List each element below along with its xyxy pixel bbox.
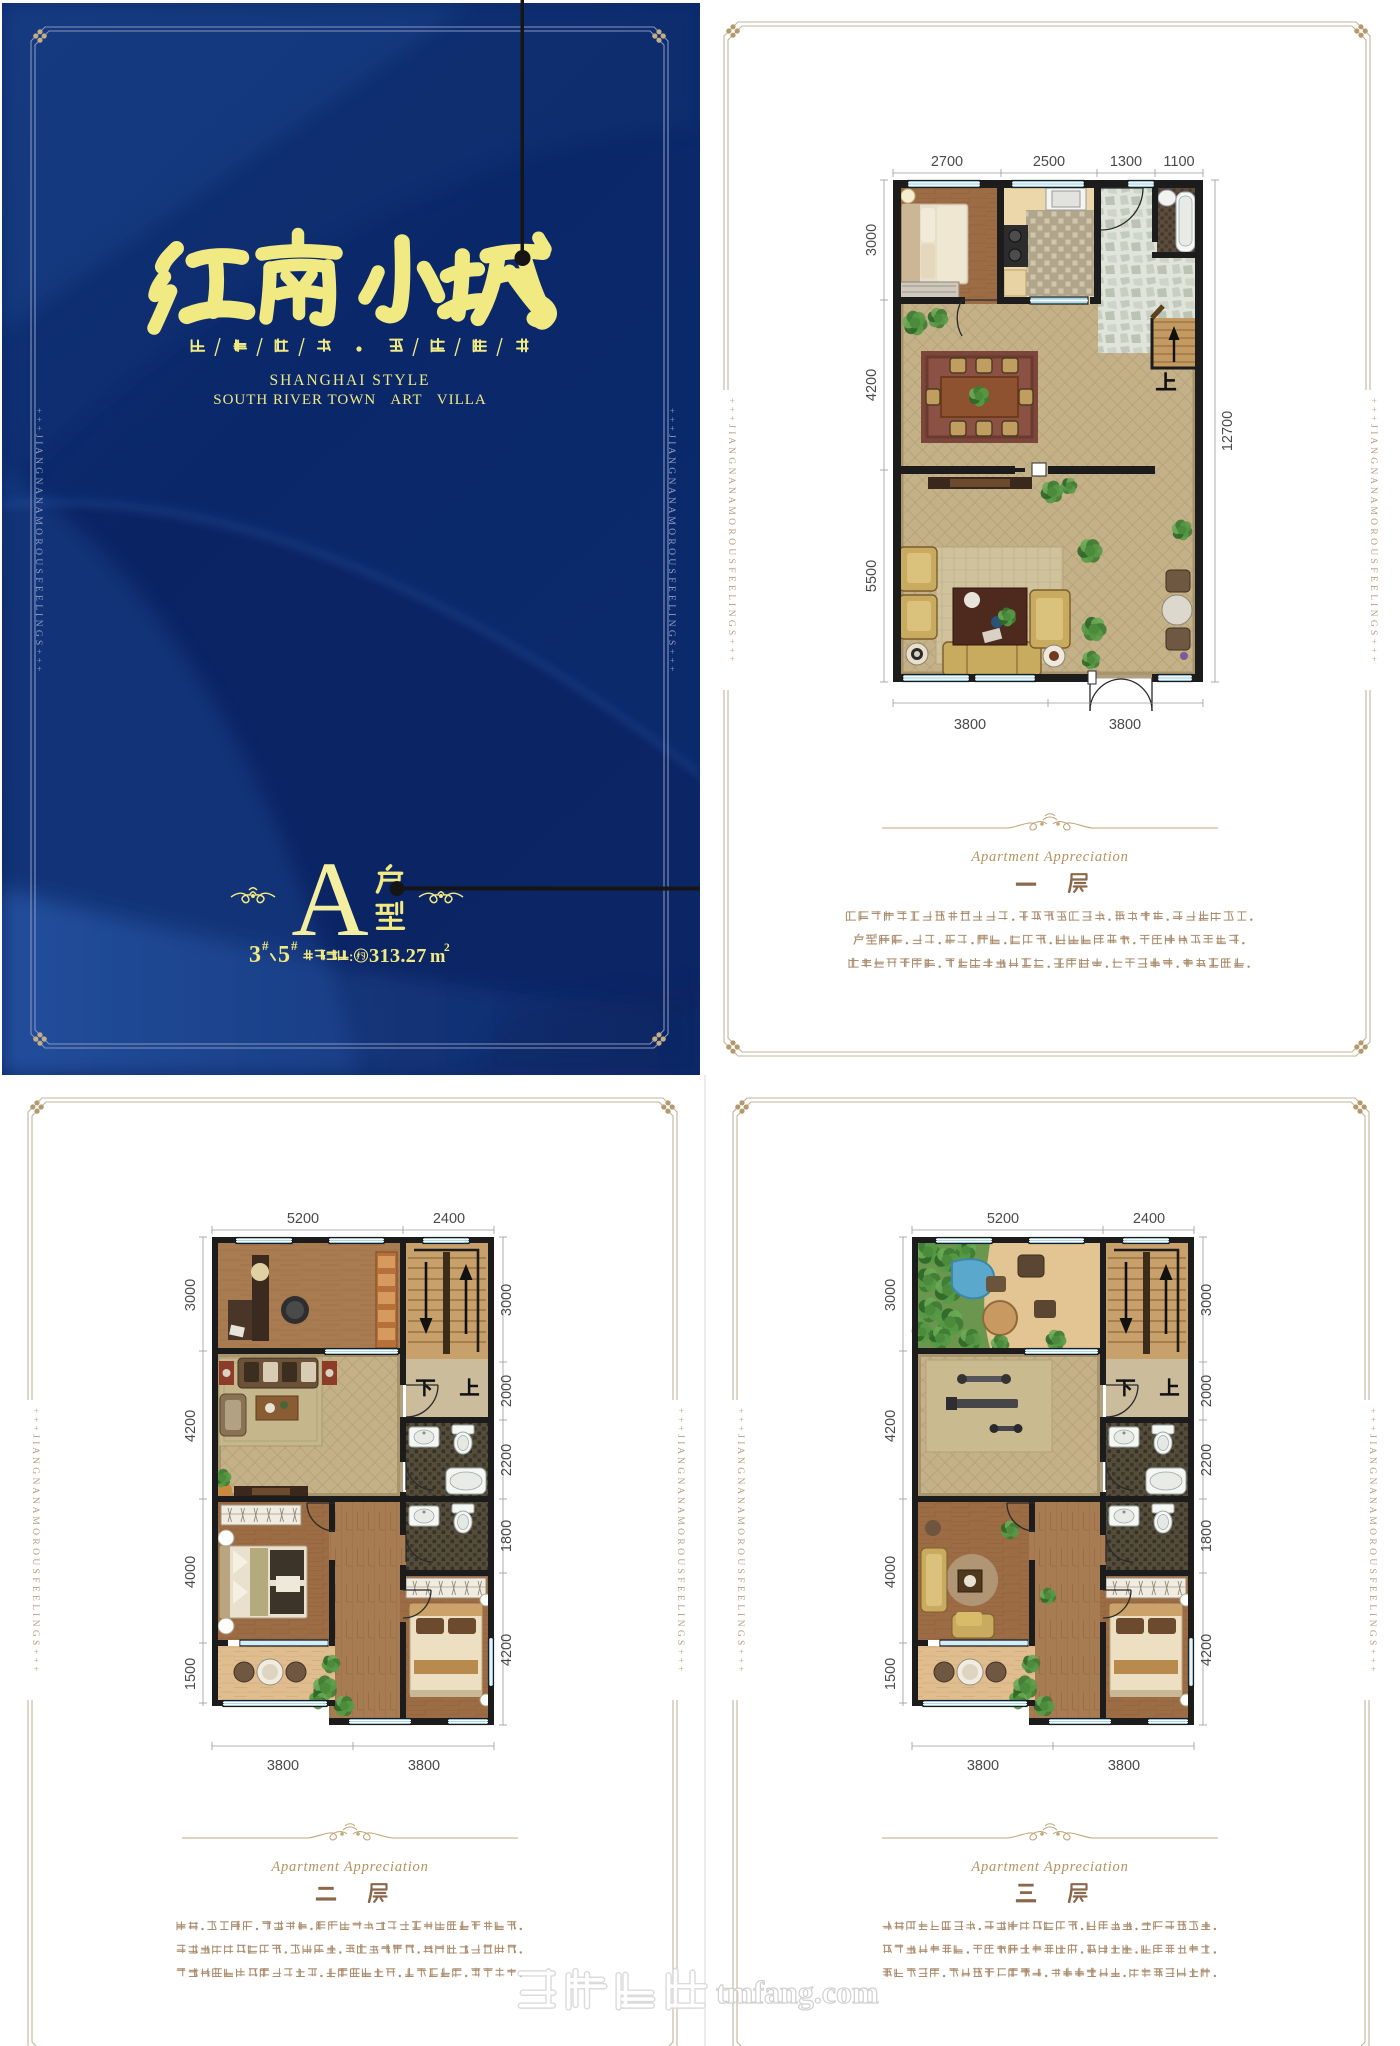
svg-text:2200: 2200 xyxy=(499,1444,515,1476)
svg-text:3000: 3000 xyxy=(183,1279,199,1311)
svg-text:#: # xyxy=(291,938,298,953)
svg-text:+ + + J I A N G N A N A: + + + J I A N G N A N A M O R O U S F E … xyxy=(1368,398,1378,662)
svg-text:Apartment Appreciation: Apartment Appreciation xyxy=(970,849,1128,865)
svg-text:2700: 2700 xyxy=(931,154,963,170)
svg-text:A: A xyxy=(291,841,368,959)
svg-text:1500: 1500 xyxy=(183,1658,199,1690)
svg-text:3800: 3800 xyxy=(408,1758,440,1774)
svg-text:4200: 4200 xyxy=(1199,1634,1215,1666)
svg-text:2200: 2200 xyxy=(1199,1444,1215,1476)
svg-text:4000: 4000 xyxy=(183,1556,199,1588)
svg-text:3800: 3800 xyxy=(267,1758,299,1774)
svg-text:2000: 2000 xyxy=(499,1375,515,1407)
svg-text:1800: 1800 xyxy=(499,1520,515,1552)
svg-text:2: 2 xyxy=(444,942,450,954)
svg-text:3800: 3800 xyxy=(1109,717,1141,733)
svg-text:2500: 2500 xyxy=(1033,154,1065,170)
svg-text:4200: 4200 xyxy=(864,369,880,401)
svg-text:1800: 1800 xyxy=(1199,1520,1215,1552)
svg-text:+ + + J I A N G N A N A: + + + J I A N G N A N A M O R O U S F E … xyxy=(666,408,676,672)
svg-text:3800: 3800 xyxy=(954,717,986,733)
svg-text:1500: 1500 xyxy=(883,1658,899,1690)
svg-text:Apartment Appreciation: Apartment Appreciation xyxy=(270,1859,428,1875)
svg-text:+ + + J I A N G N A N A: + + + J I A N G N A N A M O R O U S F E … xyxy=(33,408,43,672)
svg-text:SHANGHAI STYLE: SHANGHAI STYLE xyxy=(269,372,430,389)
svg-text:3: 3 xyxy=(249,942,261,968)
svg-text:+ + + J I A N G N A N A: + + + J I A N G N A N A M O R O U S F E … xyxy=(735,1408,745,1672)
svg-text:5200: 5200 xyxy=(287,1211,319,1227)
svg-text:4000: 4000 xyxy=(883,1556,899,1588)
svg-text:2000: 2000 xyxy=(1199,1375,1215,1407)
svg-text:3000: 3000 xyxy=(864,224,880,256)
svg-text:4200: 4200 xyxy=(499,1634,515,1666)
svg-text::: : xyxy=(349,949,353,964)
svg-text:313.27: 313.27 xyxy=(369,945,427,967)
svg-text:SOUTH RIVER TOWN ART VILLA: SOUTH RIVER TOWN ART VILLA xyxy=(213,392,487,408)
svg-text:tmfang.com: tmfang.com xyxy=(716,1974,879,2010)
svg-text:2400: 2400 xyxy=(433,1211,465,1227)
svg-text:5: 5 xyxy=(278,942,290,968)
svg-text:3800: 3800 xyxy=(1108,1758,1140,1774)
svg-text:3800: 3800 xyxy=(967,1758,999,1774)
svg-text:2400: 2400 xyxy=(1133,1211,1165,1227)
svg-text:4200: 4200 xyxy=(183,1410,199,1442)
svg-text:Apartment Appreciation: Apartment Appreciation xyxy=(970,1859,1128,1875)
svg-text:5200: 5200 xyxy=(987,1211,1019,1227)
svg-text:1300: 1300 xyxy=(1110,154,1142,170)
svg-text:#: # xyxy=(262,938,269,953)
svg-text:5500: 5500 xyxy=(864,560,880,592)
svg-text:4200: 4200 xyxy=(883,1410,899,1442)
svg-text:12700: 12700 xyxy=(1220,411,1236,451)
svg-text:+ + + J I A N G N A N A: + + + J I A N G N A N A M O R O U S F E … xyxy=(726,398,736,662)
svg-text:3000: 3000 xyxy=(883,1279,899,1311)
svg-text:+ + + J I A N G N A N A: + + + J I A N G N A N A M O R O U S F E … xyxy=(30,1408,40,1672)
svg-text:3000: 3000 xyxy=(499,1284,515,1316)
svg-text:+ + + J I A N G N A N A: + + + J I A N G N A N A M O R O U S F E … xyxy=(1367,1408,1377,1672)
svg-text:1100: 1100 xyxy=(1163,154,1194,170)
svg-text:+ + + J I A N G N A N A: + + + J I A N G N A N A M O R O U S F E … xyxy=(675,1408,685,1672)
svg-text:3000: 3000 xyxy=(1199,1284,1215,1316)
